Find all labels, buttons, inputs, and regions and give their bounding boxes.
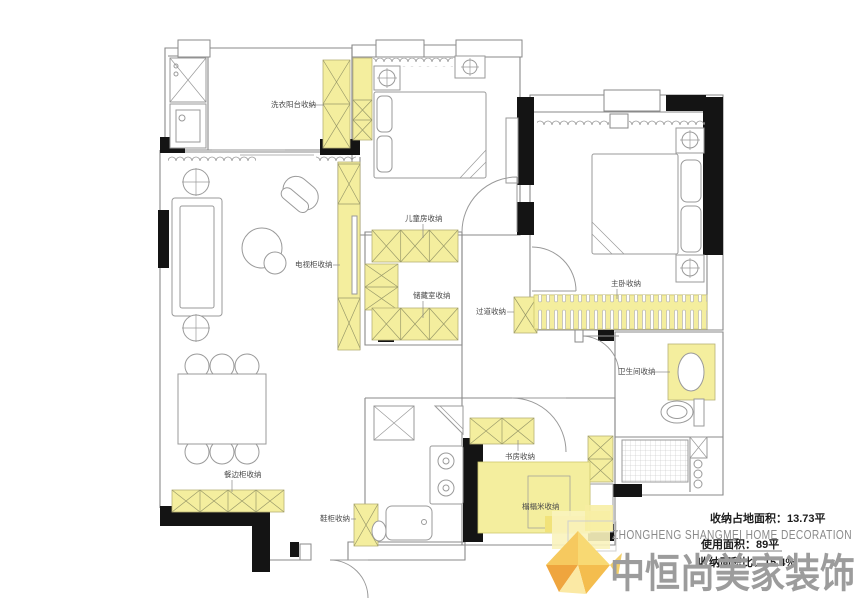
label-master-bedroom-storage: 主卧收纳 [611,278,641,288]
shower-area [622,437,707,488]
label-hallway-storage: 过道收纳 [476,306,506,316]
stat-storage-area: 收纳占地面积：13.73平 [710,511,826,525]
study-wardrobe [470,418,534,444]
label-storage-room-storage: 储藏室收纳 [413,290,451,300]
sink-icon [678,353,704,391]
door-entrance [330,560,368,598]
kitchen-sink-icon [372,506,432,541]
armchair [276,171,323,217]
window-icon [376,40,424,57]
window-wave-icon [537,118,609,127]
kids-bed [374,66,486,178]
kids-room-cabinet-strip [372,230,458,262]
hallway-cabinet [514,297,537,333]
label-shoe-cabinet-storage: 鞋柜收纳 [320,513,350,523]
ac-unit-icon [455,56,485,78]
label-bathroom-storage: 卫生间收纳 [618,366,656,376]
master-wardrobe [534,295,707,329]
window-icon [178,40,210,57]
label-kids-room-storage: 儿童房收纳 [405,213,443,223]
toilet-icon [661,399,704,426]
master-bed [592,128,704,282]
storage-room-cabinet-strip [372,308,458,340]
label-tv-cabinet-storage: 电视柜收纳 [295,259,333,269]
floor-plan: 洗衣阳台收纳 儿童房收纳 电视柜收纳 储藏室收纳 过道收纳 主卧收纳 卫生间收纳… [0,0,857,600]
stove-icon [430,446,463,504]
washer-dryer-icon [170,58,206,148]
label-laundry-storage: 洗衣阳台收纳 [271,99,316,109]
bathroom-vanity [668,344,715,400]
fridge-icon [374,406,414,440]
tv-icon [352,216,357,294]
brand-name-chinese: 中恒尚美家装饰 [610,552,855,596]
door-bathroom [581,336,619,374]
window-icon [456,40,522,57]
window-icon [610,114,628,128]
door-master [532,247,576,291]
door-kids-room [462,177,517,232]
stat-usable-area: 使用面积：89平 [700,537,779,551]
window-wave-icon [168,152,256,162]
sideboard-cabinet [172,490,284,512]
label-tatami-storage: 榻榻米收纳 [522,501,560,511]
label-sideboard-storage: 餐边柜收纳 [224,469,262,479]
laundry-balcony-cabinet [323,60,350,148]
window-wave-icon [316,152,356,162]
window-icon [604,90,660,111]
dining-set [178,354,266,464]
kids-wardrobe [353,58,372,140]
storage-room-side-cabinet [365,264,398,310]
label-study-storage: 书房收纳 [505,451,535,461]
tv-wall-cabinet [338,162,360,350]
sofa [172,198,222,316]
window-wave-icon [629,118,705,127]
coffee-table [242,228,286,274]
kids-desk [506,118,518,183]
corner-shelf [435,406,463,434]
